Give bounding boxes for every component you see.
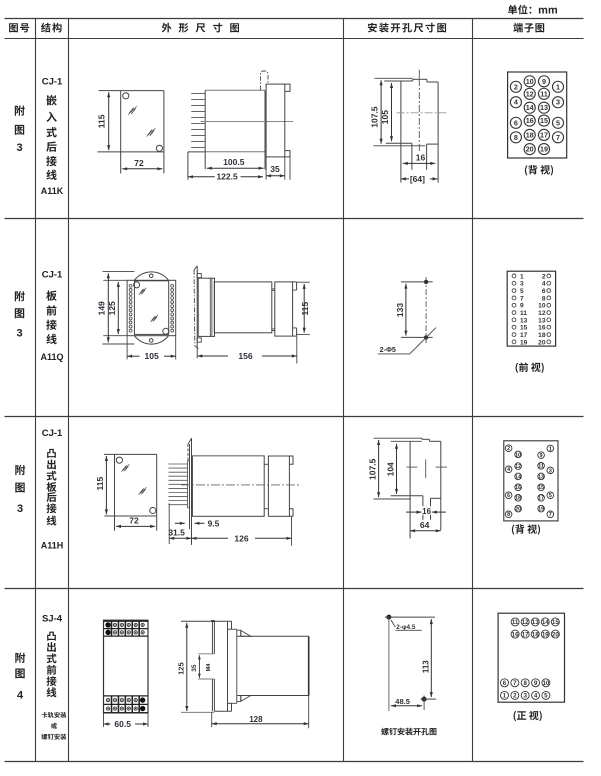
- svg-text:19: 19: [542, 631, 549, 638]
- svg-text:115: 115: [95, 476, 105, 490]
- svg-text:122.5: 122.5: [216, 172, 238, 182]
- svg-text:2: 2: [513, 693, 517, 700]
- svg-text:7: 7: [556, 133, 560, 142]
- svg-text:13: 13: [520, 317, 528, 324]
- svg-text:48.5: 48.5: [395, 697, 410, 706]
- svg-text:12: 12: [522, 619, 529, 626]
- svg-text:4: 4: [514, 98, 518, 107]
- svg-text:19: 19: [538, 507, 544, 513]
- svg-text:CJ-1: CJ-1: [42, 77, 63, 88]
- svg-text:60.5: 60.5: [114, 719, 131, 729]
- svg-text:2: 2: [514, 82, 518, 91]
- svg-text:2-Φ5: 2-Φ5: [380, 345, 396, 354]
- svg-text:113: 113: [421, 660, 430, 673]
- svg-text:6: 6: [514, 118, 518, 127]
- svg-text:18: 18: [526, 130, 534, 139]
- svg-text:3: 3: [523, 693, 527, 700]
- svg-text:35: 35: [191, 664, 198, 672]
- svg-text:15: 15: [538, 485, 544, 491]
- svg-text:125: 125: [177, 662, 186, 675]
- svg-text:16: 16: [538, 325, 546, 332]
- svg-text:125: 125: [107, 301, 117, 315]
- svg-text:72: 72: [134, 158, 144, 168]
- svg-text:4: 4: [507, 467, 510, 473]
- svg-text:16: 16: [515, 485, 521, 491]
- svg-text:16: 16: [512, 631, 519, 638]
- svg-text:17: 17: [538, 496, 544, 502]
- svg-text:A11H: A11H: [41, 541, 64, 551]
- svg-text:156: 156: [238, 351, 252, 361]
- svg-text:2: 2: [507, 446, 510, 452]
- svg-text:3: 3: [17, 503, 23, 515]
- svg-text:14: 14: [515, 474, 521, 480]
- svg-text:20: 20: [515, 507, 521, 513]
- svg-text:3: 3: [556, 98, 560, 107]
- svg-text:18: 18: [532, 631, 539, 638]
- svg-text:11: 11: [540, 89, 548, 98]
- svg-text:105: 105: [145, 351, 159, 361]
- svg-text:18: 18: [538, 332, 546, 339]
- svg-text:12: 12: [538, 310, 546, 317]
- svg-text:20: 20: [552, 631, 559, 638]
- svg-text:17: 17: [540, 130, 548, 139]
- svg-text:5: 5: [556, 118, 560, 127]
- svg-text:15: 15: [520, 325, 528, 332]
- svg-text:A11K: A11K: [41, 186, 64, 196]
- svg-text:1: 1: [520, 273, 524, 280]
- svg-text:15: 15: [552, 619, 559, 626]
- svg-text:8: 8: [514, 133, 518, 142]
- svg-text:72: 72: [129, 515, 139, 525]
- svg-text:SJ-4: SJ-4: [42, 613, 63, 624]
- svg-text:10: 10: [515, 452, 521, 458]
- svg-text:126: 126: [234, 533, 248, 543]
- svg-text:16: 16: [416, 152, 426, 162]
- svg-text:14: 14: [526, 103, 534, 112]
- svg-text:105: 105: [380, 110, 390, 124]
- svg-text:20: 20: [538, 339, 546, 346]
- svg-text:15: 15: [540, 116, 548, 125]
- svg-text:CJ-1: CJ-1: [42, 428, 63, 439]
- svg-text:133: 133: [395, 303, 405, 317]
- svg-text:35: 35: [270, 164, 280, 174]
- svg-text:1: 1: [556, 82, 560, 91]
- svg-text:107.5: 107.5: [370, 106, 380, 128]
- svg-text:115: 115: [97, 114, 107, 128]
- svg-text:100.5: 100.5: [223, 157, 245, 167]
- svg-text:A11Q: A11Q: [40, 352, 63, 362]
- svg-text:10: 10: [542, 680, 549, 687]
- svg-text:3: 3: [16, 328, 22, 340]
- svg-text:12: 12: [526, 89, 534, 98]
- svg-text:9: 9: [520, 303, 524, 310]
- svg-text:7: 7: [520, 295, 524, 302]
- svg-text:4: 4: [17, 690, 24, 702]
- svg-text:10: 10: [526, 77, 534, 86]
- svg-text:M4: M4: [206, 663, 212, 672]
- svg-text:4: 4: [542, 281, 546, 288]
- svg-text:1: 1: [503, 693, 507, 700]
- svg-text:9: 9: [534, 680, 538, 687]
- svg-text:9: 9: [542, 77, 546, 86]
- svg-text:19: 19: [540, 145, 548, 154]
- svg-text:7: 7: [513, 680, 517, 687]
- svg-text:13: 13: [538, 474, 544, 480]
- svg-text:6: 6: [503, 680, 507, 687]
- svg-text:16: 16: [422, 507, 431, 516]
- svg-text:5: 5: [549, 493, 552, 499]
- svg-text:4: 4: [534, 693, 538, 700]
- svg-text:107.5: 107.5: [367, 458, 377, 480]
- svg-text:3: 3: [549, 468, 552, 474]
- svg-text:3: 3: [16, 142, 22, 154]
- svg-text:[64]: [64]: [410, 174, 425, 184]
- svg-text:10: 10: [538, 303, 546, 310]
- svg-text:6: 6: [542, 288, 546, 295]
- svg-text:20: 20: [526, 145, 534, 154]
- svg-text:115: 115: [300, 301, 310, 315]
- svg-text:8: 8: [507, 512, 510, 518]
- svg-text:64: 64: [420, 520, 430, 530]
- svg-text:1: 1: [549, 446, 552, 452]
- svg-text:2: 2: [542, 273, 546, 280]
- svg-text:128: 128: [249, 715, 263, 724]
- svg-text:11: 11: [512, 619, 519, 626]
- svg-text:CJ-1: CJ-1: [42, 270, 63, 281]
- svg-text:14: 14: [542, 619, 549, 626]
- svg-text:5: 5: [520, 288, 524, 295]
- svg-text:13: 13: [532, 619, 539, 626]
- svg-text:19: 19: [520, 339, 528, 346]
- svg-text:13: 13: [540, 103, 548, 112]
- svg-text:11: 11: [538, 464, 544, 470]
- svg-text:17: 17: [520, 332, 528, 339]
- svg-text:13: 13: [538, 317, 546, 324]
- svg-text:149: 149: [97, 301, 107, 315]
- svg-text:9.5: 9.5: [208, 518, 220, 528]
- svg-text:3: 3: [520, 281, 524, 288]
- svg-text:12: 12: [515, 464, 521, 470]
- svg-text:11: 11: [520, 310, 527, 317]
- svg-text:18: 18: [515, 496, 521, 502]
- svg-text:8: 8: [523, 680, 527, 687]
- svg-text:17: 17: [522, 631, 529, 638]
- svg-text:104: 104: [385, 462, 395, 476]
- svg-text:31.5: 31.5: [168, 527, 185, 537]
- svg-text:9: 9: [540, 453, 543, 459]
- svg-text:5: 5: [544, 693, 548, 700]
- svg-text:7: 7: [549, 512, 552, 518]
- svg-text:16: 16: [526, 116, 534, 125]
- svg-text:2-φ4.5: 2-φ4.5: [396, 624, 416, 631]
- svg-text:6: 6: [507, 493, 510, 499]
- svg-text:8: 8: [542, 295, 546, 302]
